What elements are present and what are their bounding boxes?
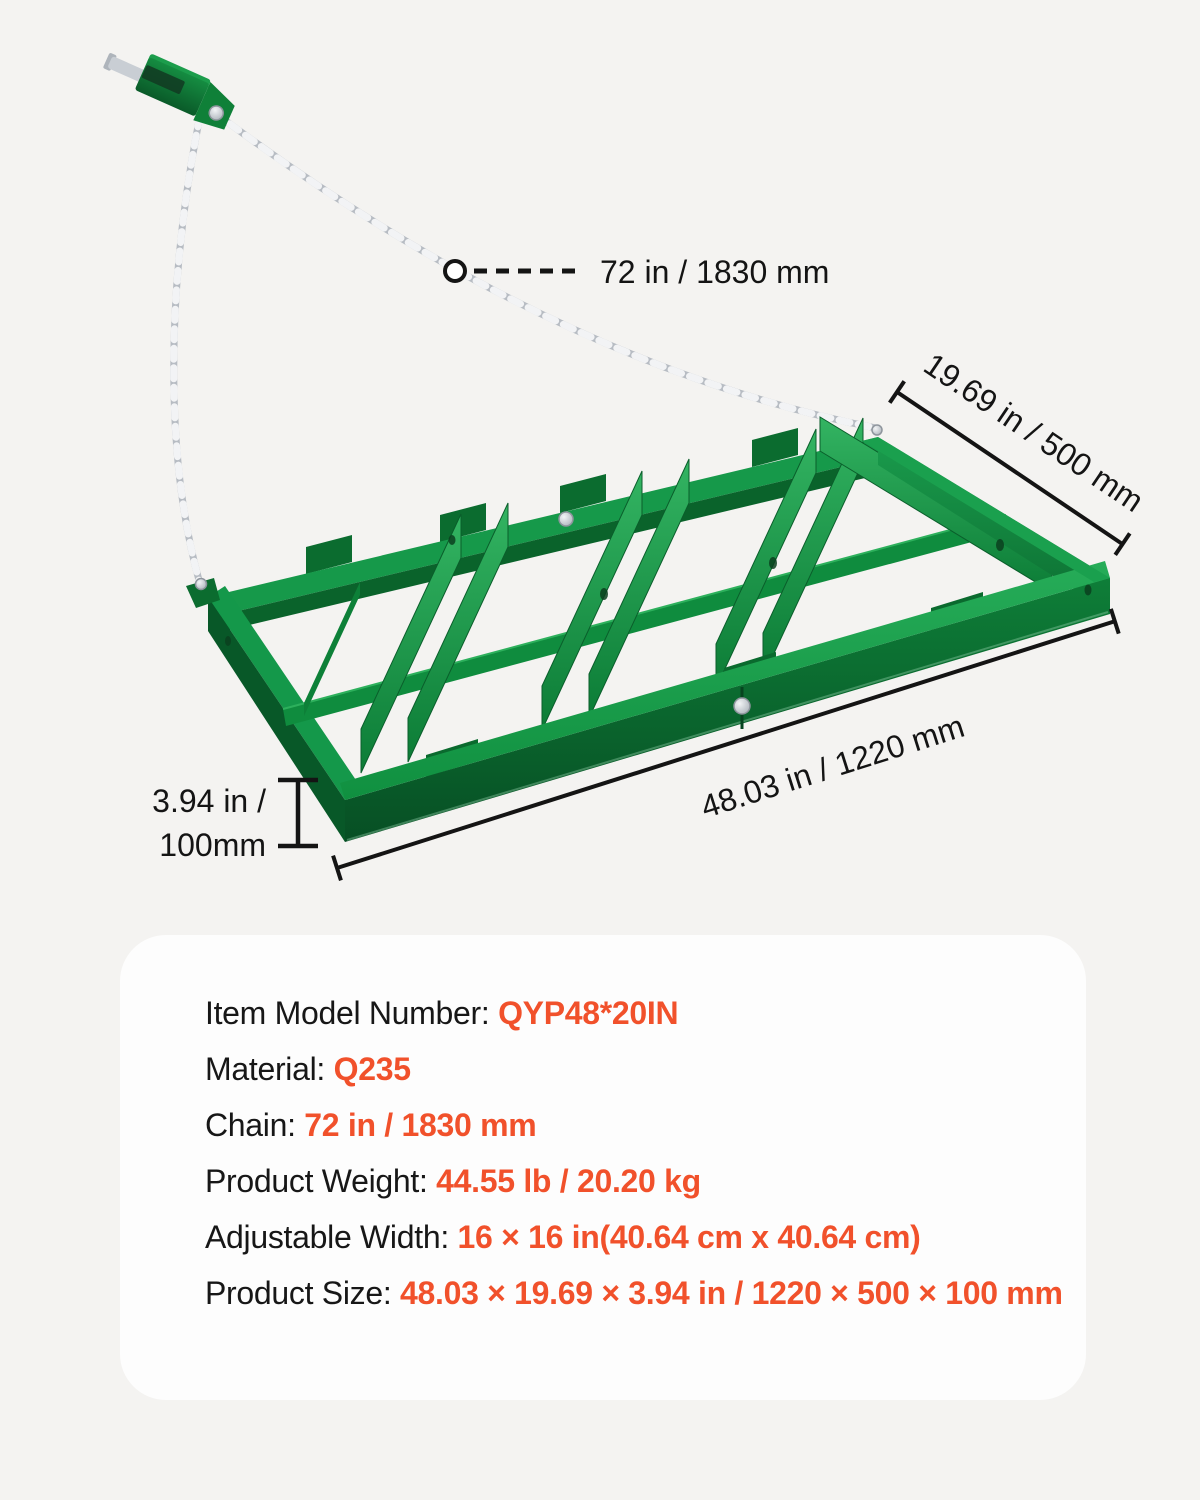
spec-label: Item Model Number: xyxy=(205,995,498,1031)
width-dimension: 19.69 in / 500 mm xyxy=(890,341,1157,554)
chain-length-label: 72 in / 1830 mm xyxy=(600,254,829,290)
length-label: 48.03 in / 1220 mm xyxy=(696,708,968,825)
spec-value: QYP48*20IN xyxy=(498,995,678,1031)
product-diagram: 72 in / 1830 mm 19.69 in / 500 mm 48.03 … xyxy=(0,0,1200,945)
grader-frame xyxy=(186,417,1110,842)
spec-value: 48.03 × 19.69 × 3.94 in / 1220 × 500 × 1… xyxy=(400,1275,1063,1311)
product-infographic-page: 72 in / 1830 mm 19.69 in / 500 mm 48.03 … xyxy=(0,0,1200,1500)
spec-row-product-size: Product Size: 48.03 × 19.69 × 3.94 in / … xyxy=(205,1265,1046,1321)
spec-label: Adjustable Width: xyxy=(205,1219,458,1255)
spec-card: Item Model Number: QYP48*20IN Material: … xyxy=(120,935,1086,1400)
spec-row-material: Material: Q235 xyxy=(205,1041,1046,1097)
hitch-mount-bracket xyxy=(98,38,240,134)
spec-label: Product Weight: xyxy=(205,1163,436,1199)
spec-value: 72 in / 1830 mm xyxy=(304,1107,536,1143)
height-dimension: 3.94 in / 100mm xyxy=(152,780,318,863)
spec-value: 44.55 lb / 20.20 kg xyxy=(436,1163,701,1199)
height-label-line1: 3.94 in / xyxy=(152,783,266,819)
chain-callout-circle xyxy=(445,261,465,281)
left-chain-pin xyxy=(196,579,207,590)
spec-label: Product Size: xyxy=(205,1275,400,1311)
spec-label: Chain: xyxy=(205,1107,304,1143)
spec-row-adjustable-width: Adjustable Width: 16 × 16 in(40.64 cm x … xyxy=(205,1209,1046,1265)
right-chain-pin xyxy=(872,425,882,435)
spec-value: 16 × 16 in(40.64 cm x 40.64 cm) xyxy=(458,1219,921,1255)
spec-label: Material: xyxy=(205,1051,334,1087)
height-label-line2: 100mm xyxy=(159,827,266,863)
chain-length-annotation: 72 in / 1830 mm xyxy=(445,254,829,290)
spec-row-model: Item Model Number: QYP48*20IN xyxy=(205,985,1046,1041)
spec-value: Q235 xyxy=(334,1051,411,1087)
tow-chain-left xyxy=(174,116,200,584)
spec-row-weight: Product Weight: 44.55 lb / 20.20 kg xyxy=(205,1153,1046,1209)
rear-bolt xyxy=(559,512,573,526)
front-dome-bolt xyxy=(734,698,750,714)
spec-row-chain: Chain: 72 in / 1830 mm xyxy=(205,1097,1046,1153)
